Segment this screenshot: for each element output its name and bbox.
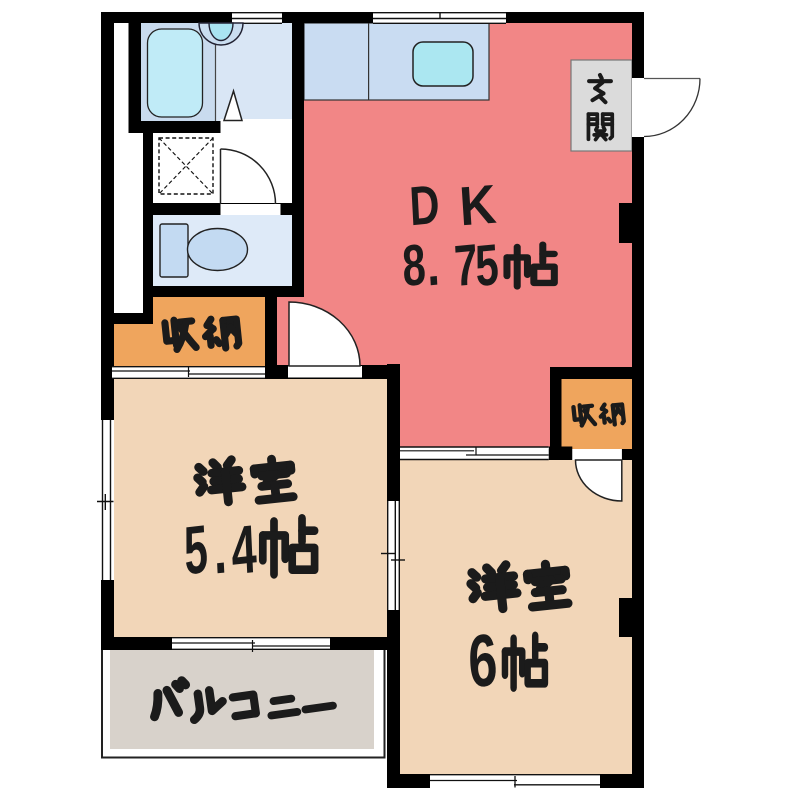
svg-text:6: 6 xyxy=(466,618,499,704)
svg-text:5: 5 xyxy=(474,231,500,299)
svg-text:5: 5 xyxy=(183,511,210,589)
svg-text:8: 8 xyxy=(401,231,427,299)
svg-text:4: 4 xyxy=(230,512,258,590)
svg-text:K: K xyxy=(458,174,498,238)
svg-text:D: D xyxy=(408,174,441,238)
